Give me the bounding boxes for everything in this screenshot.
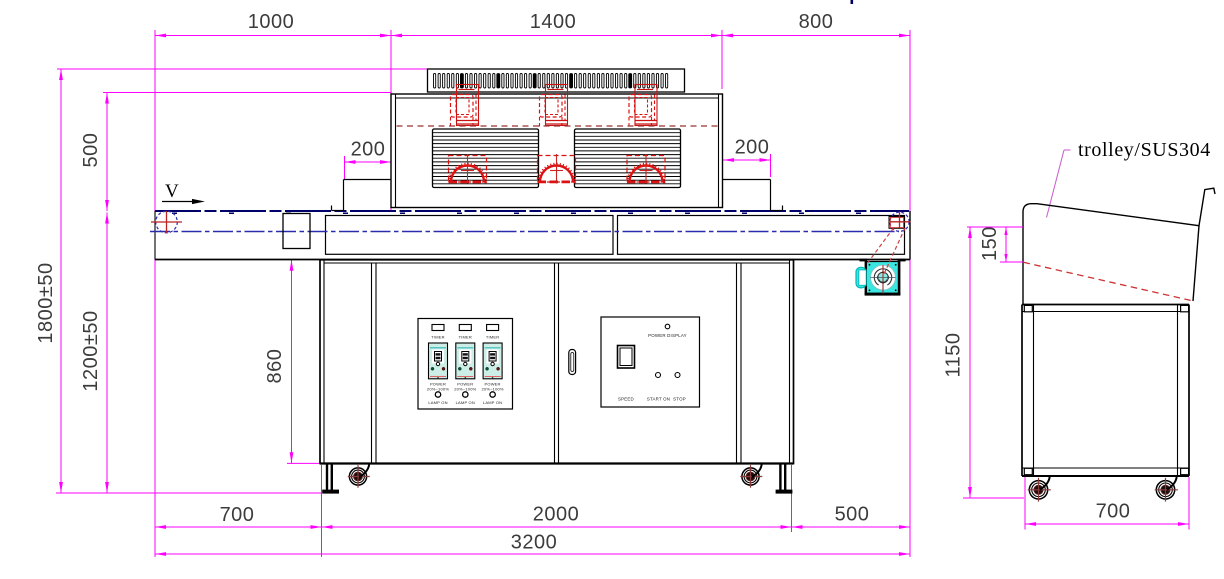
- svg-text:TIMER: TIMER: [459, 335, 472, 340]
- svg-text:V: V: [165, 181, 179, 202]
- svg-text:TIMER: TIMER: [431, 335, 444, 340]
- svg-text:START ON: START ON: [647, 397, 670, 402]
- svg-text:POWER DISPLAY: POWER DISPLAY: [648, 333, 687, 338]
- svg-text:200: 200: [735, 137, 770, 159]
- svg-text:20%~100%: 20%~100%: [454, 386, 476, 391]
- svg-text:200: 200: [351, 139, 386, 161]
- svg-text:1800±50: 1800±50: [35, 262, 57, 343]
- svg-text:150: 150: [979, 226, 1001, 261]
- svg-text:2000: 2000: [533, 504, 580, 526]
- svg-text:700: 700: [220, 504, 255, 526]
- svg-text:1150: 1150: [943, 332, 965, 377]
- svg-text:20%~100%: 20%~100%: [427, 386, 449, 391]
- svg-text:SPEED: SPEED: [618, 397, 634, 402]
- svg-text:500: 500: [80, 133, 102, 168]
- svg-text:1200±50: 1200±50: [80, 310, 102, 391]
- svg-text:LAMP ON: LAMP ON: [428, 400, 447, 405]
- svg-text:trolley/SUS304: trolley/SUS304: [1078, 139, 1211, 161]
- svg-text:LAMP ON: LAMP ON: [483, 400, 502, 405]
- svg-text:700: 700: [1096, 501, 1131, 523]
- svg-text:TIMER: TIMER: [486, 335, 499, 340]
- svg-text:20%~100%: 20%~100%: [482, 386, 504, 391]
- svg-text:LAMP ON: LAMP ON: [456, 400, 475, 405]
- svg-text:500: 500: [835, 504, 870, 526]
- svg-text:1000: 1000: [248, 11, 295, 33]
- svg-text:3200: 3200: [511, 532, 558, 554]
- svg-text:800: 800: [799, 11, 834, 33]
- svg-text:860: 860: [264, 349, 286, 384]
- svg-text:STOP: STOP: [673, 397, 686, 402]
- svg-text:1400: 1400: [530, 11, 577, 33]
